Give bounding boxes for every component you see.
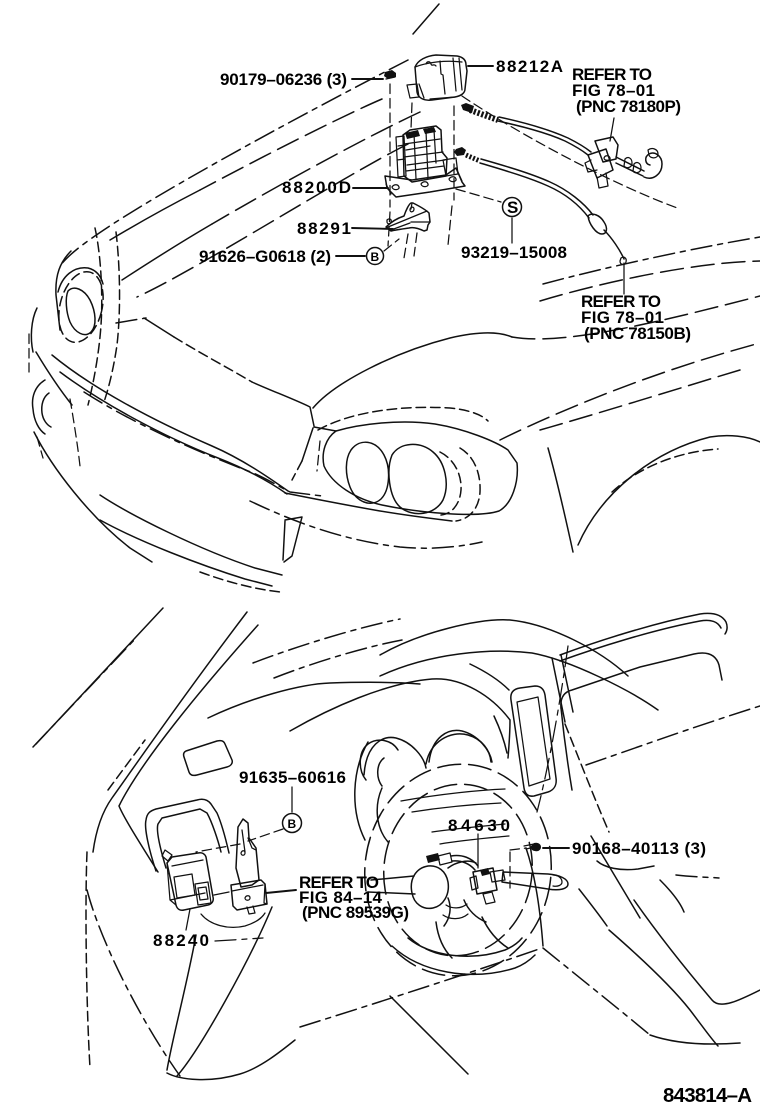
svg-text:91635–60616: 91635–60616 xyxy=(239,768,346,787)
svg-text:B: B xyxy=(371,250,380,264)
svg-text:(PNC 89539G): (PNC 89539G) xyxy=(302,903,409,922)
svg-text:(PNC 78150B): (PNC 78150B) xyxy=(584,324,691,343)
svg-text:B: B xyxy=(288,817,297,831)
svg-text:93219–15008: 93219–15008 xyxy=(461,243,567,262)
svg-text:S: S xyxy=(507,198,518,217)
svg-text:90168–40113 (3): 90168–40113 (3) xyxy=(572,839,706,858)
svg-text:843814–A: 843814–A xyxy=(663,1084,752,1107)
svg-text:91626–G0618 (2): 91626–G0618 (2) xyxy=(199,247,331,266)
svg-text:88240: 88240 xyxy=(153,931,209,950)
svg-text:90179–06236 (3): 90179–06236 (3) xyxy=(220,70,347,89)
svg-text:(PNC 78180P): (PNC 78180P) xyxy=(576,97,681,116)
svg-text:88212A: 88212A xyxy=(496,57,563,76)
svg-text:84630: 84630 xyxy=(448,816,510,835)
svg-text:88291: 88291 xyxy=(297,219,351,238)
